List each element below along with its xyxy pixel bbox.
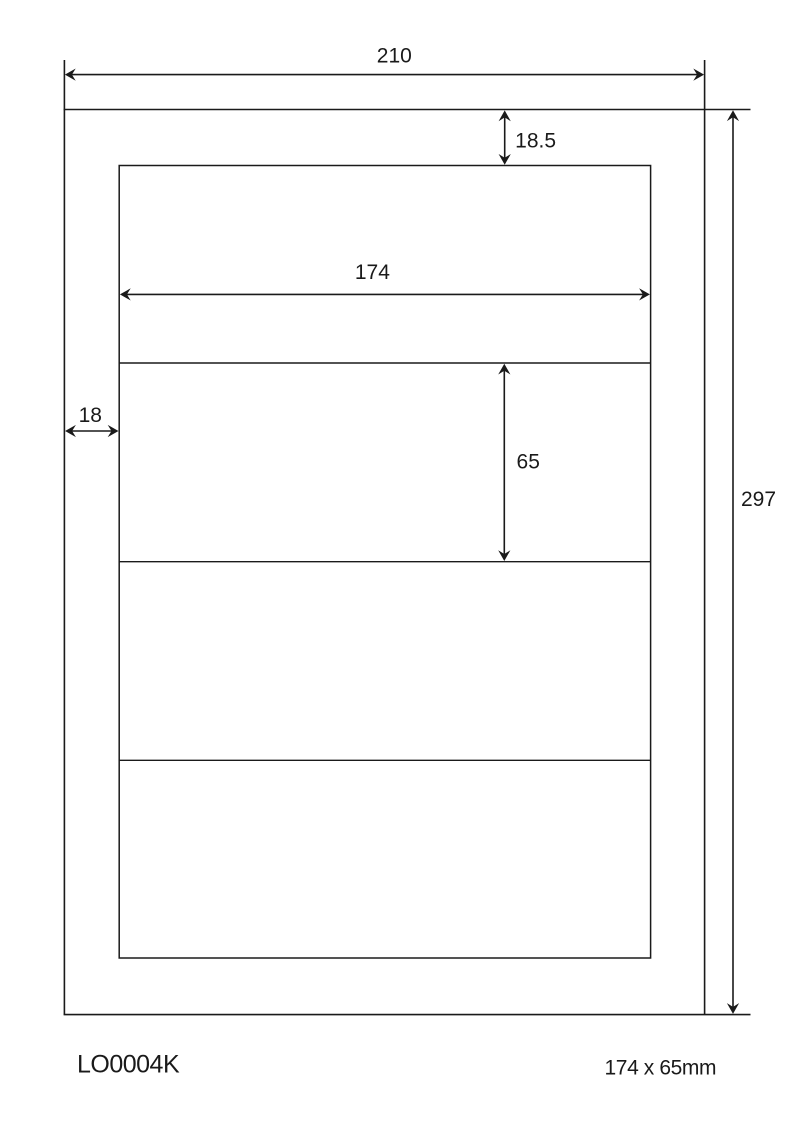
svg-text:65: 65 — [517, 451, 540, 474]
svg-text:18: 18 — [79, 404, 102, 427]
svg-text:174: 174 — [355, 261, 390, 284]
svg-text:174 x 65mm: 174 x 65mm — [605, 1056, 717, 1079]
svg-text:297: 297 — [741, 488, 776, 511]
svg-text:18.5: 18.5 — [515, 130, 556, 153]
svg-text:210: 210 — [377, 44, 412, 67]
svg-text:LO0004K: LO0004K — [77, 1050, 180, 1078]
